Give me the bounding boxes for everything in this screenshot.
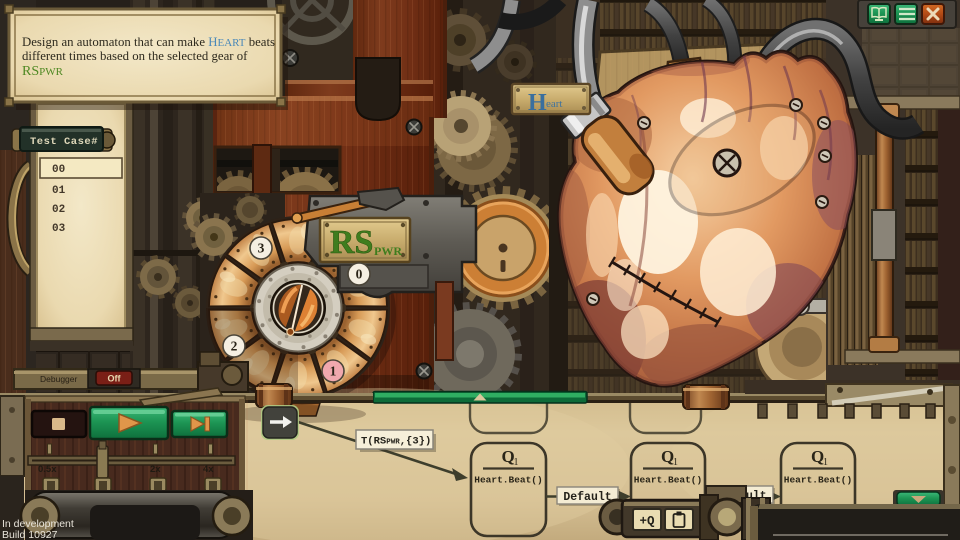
svg-text:Default: Default [563,491,611,504]
svg-text:0.5x: 0.5x [38,464,57,475]
svg-text:2x: 2x [150,464,161,475]
svg-text:3: 3 [258,241,265,256]
svg-text:Heart.Beat(): Heart.Beat() [634,475,702,486]
svg-text:00: 00 [52,164,65,176]
svg-text:Debugger: Debugger [40,374,78,384]
svg-text:1: 1 [330,364,337,379]
svg-text:Design an automaton that can m: Design an automaton that can make HEART … [22,35,275,49]
svg-text:01: 01 [52,185,66,197]
svg-text:02: 02 [52,204,65,216]
svg-text:H: H [528,90,547,116]
svg-text:Test Case#: Test Case# [30,136,98,148]
svg-text:0: 0 [356,267,363,282]
svg-text:different times based on the s: different times based on the selected ge… [22,49,248,63]
svg-text:Build 10927: Build 10927 [2,529,58,540]
svg-text:Heart.Beat(): Heart.Beat() [784,475,852,486]
svg-text:Heart.Beat(): Heart.Beat() [474,475,542,486]
svg-text:Off: Off [108,374,122,384]
svg-text:03: 03 [52,223,66,235]
svg-text:PWR: PWR [374,244,402,258]
svg-text:+Q: +Q [639,515,655,529]
svg-text:1: 1 [673,457,678,468]
svg-text:1: 1 [514,457,519,468]
svg-text:4x: 4x [203,464,214,475]
svg-text:RSPWR: RSPWR [22,64,64,79]
svg-text:RS: RS [330,224,373,261]
svg-text:eart: eart [546,98,562,110]
svg-text:2: 2 [231,339,238,354]
svg-text:1: 1 [823,457,828,468]
